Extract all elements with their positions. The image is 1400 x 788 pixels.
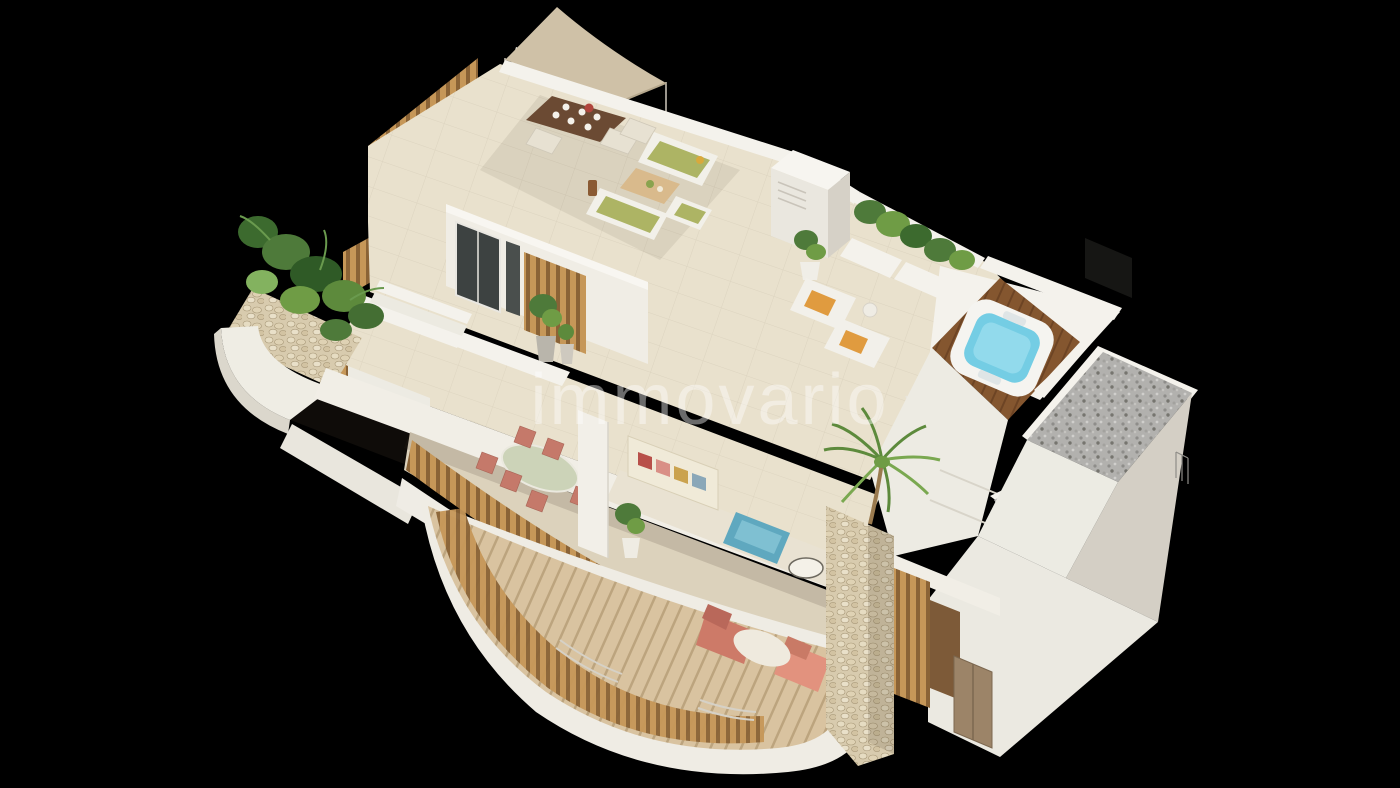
potted-plant [627, 518, 645, 534]
lantern [588, 180, 597, 196]
palm-crown [874, 456, 890, 468]
side-table [863, 303, 877, 317]
floorplan-render-stage: immovario [0, 0, 1400, 788]
table-decor [646, 180, 654, 188]
plant-pot [800, 262, 820, 280]
pillar-shade [868, 524, 894, 754]
centerpiece [585, 104, 594, 113]
penthouse-3d-floorplan: immovario [0, 0, 1400, 788]
immovario-watermark: immovario [530, 360, 889, 440]
plant-pot [536, 336, 556, 362]
potted-plant [806, 244, 826, 260]
potted-plant [542, 309, 562, 327]
plant-pot [622, 538, 640, 558]
table-decor [657, 186, 663, 192]
glass-sidelight [506, 241, 520, 316]
potted-plant [558, 324, 574, 340]
slat-wall [894, 568, 930, 708]
round-table [789, 558, 823, 578]
pillow [696, 156, 704, 164]
